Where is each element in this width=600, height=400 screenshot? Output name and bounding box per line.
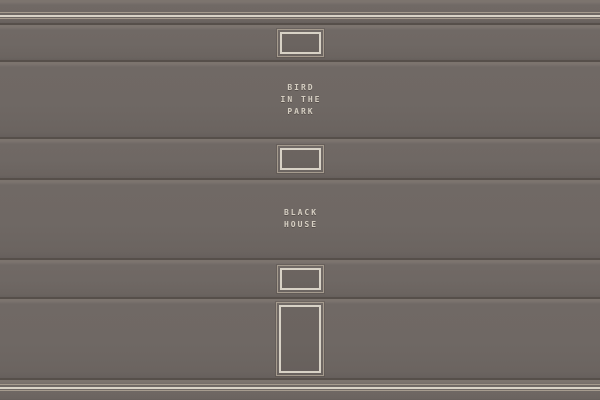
ornament-line-thin xyxy=(0,384,600,385)
label-frame-inner xyxy=(280,148,321,170)
book-spine-black-house: BLACK HOUSE xyxy=(0,180,600,258)
book-spine-bottom-lines xyxy=(0,380,600,400)
label-frame xyxy=(277,265,324,293)
book-title-black-house: BLACK HOUSE xyxy=(282,207,318,231)
triple-line-ornament xyxy=(0,384,600,391)
label-frame xyxy=(277,145,324,173)
label-frame xyxy=(277,29,324,57)
label-frame-inner xyxy=(280,268,321,290)
book-spine-bird-in-the-park: BIRD IN THE PARK xyxy=(0,62,600,137)
book-spine-label-frame-2 xyxy=(0,139,600,178)
ornament-line-thin xyxy=(0,390,600,391)
ornament-line-thin xyxy=(0,18,600,19)
tall-label-frame-inner xyxy=(279,305,321,373)
title-line: HOUSE xyxy=(282,219,318,231)
title-line: BLACK xyxy=(282,207,318,219)
ornament-line-thick xyxy=(0,15,600,17)
book-spine-label-frame-1 xyxy=(0,25,600,60)
title-line: IN THE xyxy=(279,94,322,106)
book-spine-top-lines xyxy=(0,0,600,23)
triple-line-ornament xyxy=(0,12,600,19)
tall-label-frame xyxy=(276,302,324,376)
book-title-bird-in-the-park: BIRD IN THE PARK xyxy=(279,82,322,118)
ornament-line-thick xyxy=(0,387,600,389)
ornament-line-thin xyxy=(0,12,600,13)
title-line: BIRD xyxy=(279,82,322,94)
label-frame-inner xyxy=(280,32,321,54)
book-spine-label-frame-3 xyxy=(0,260,600,297)
book-spine-tall-frame xyxy=(0,299,600,378)
book-stack: BIRD IN THE PARK BLACK HOUSE xyxy=(0,0,600,400)
title-line: PARK xyxy=(279,106,322,118)
